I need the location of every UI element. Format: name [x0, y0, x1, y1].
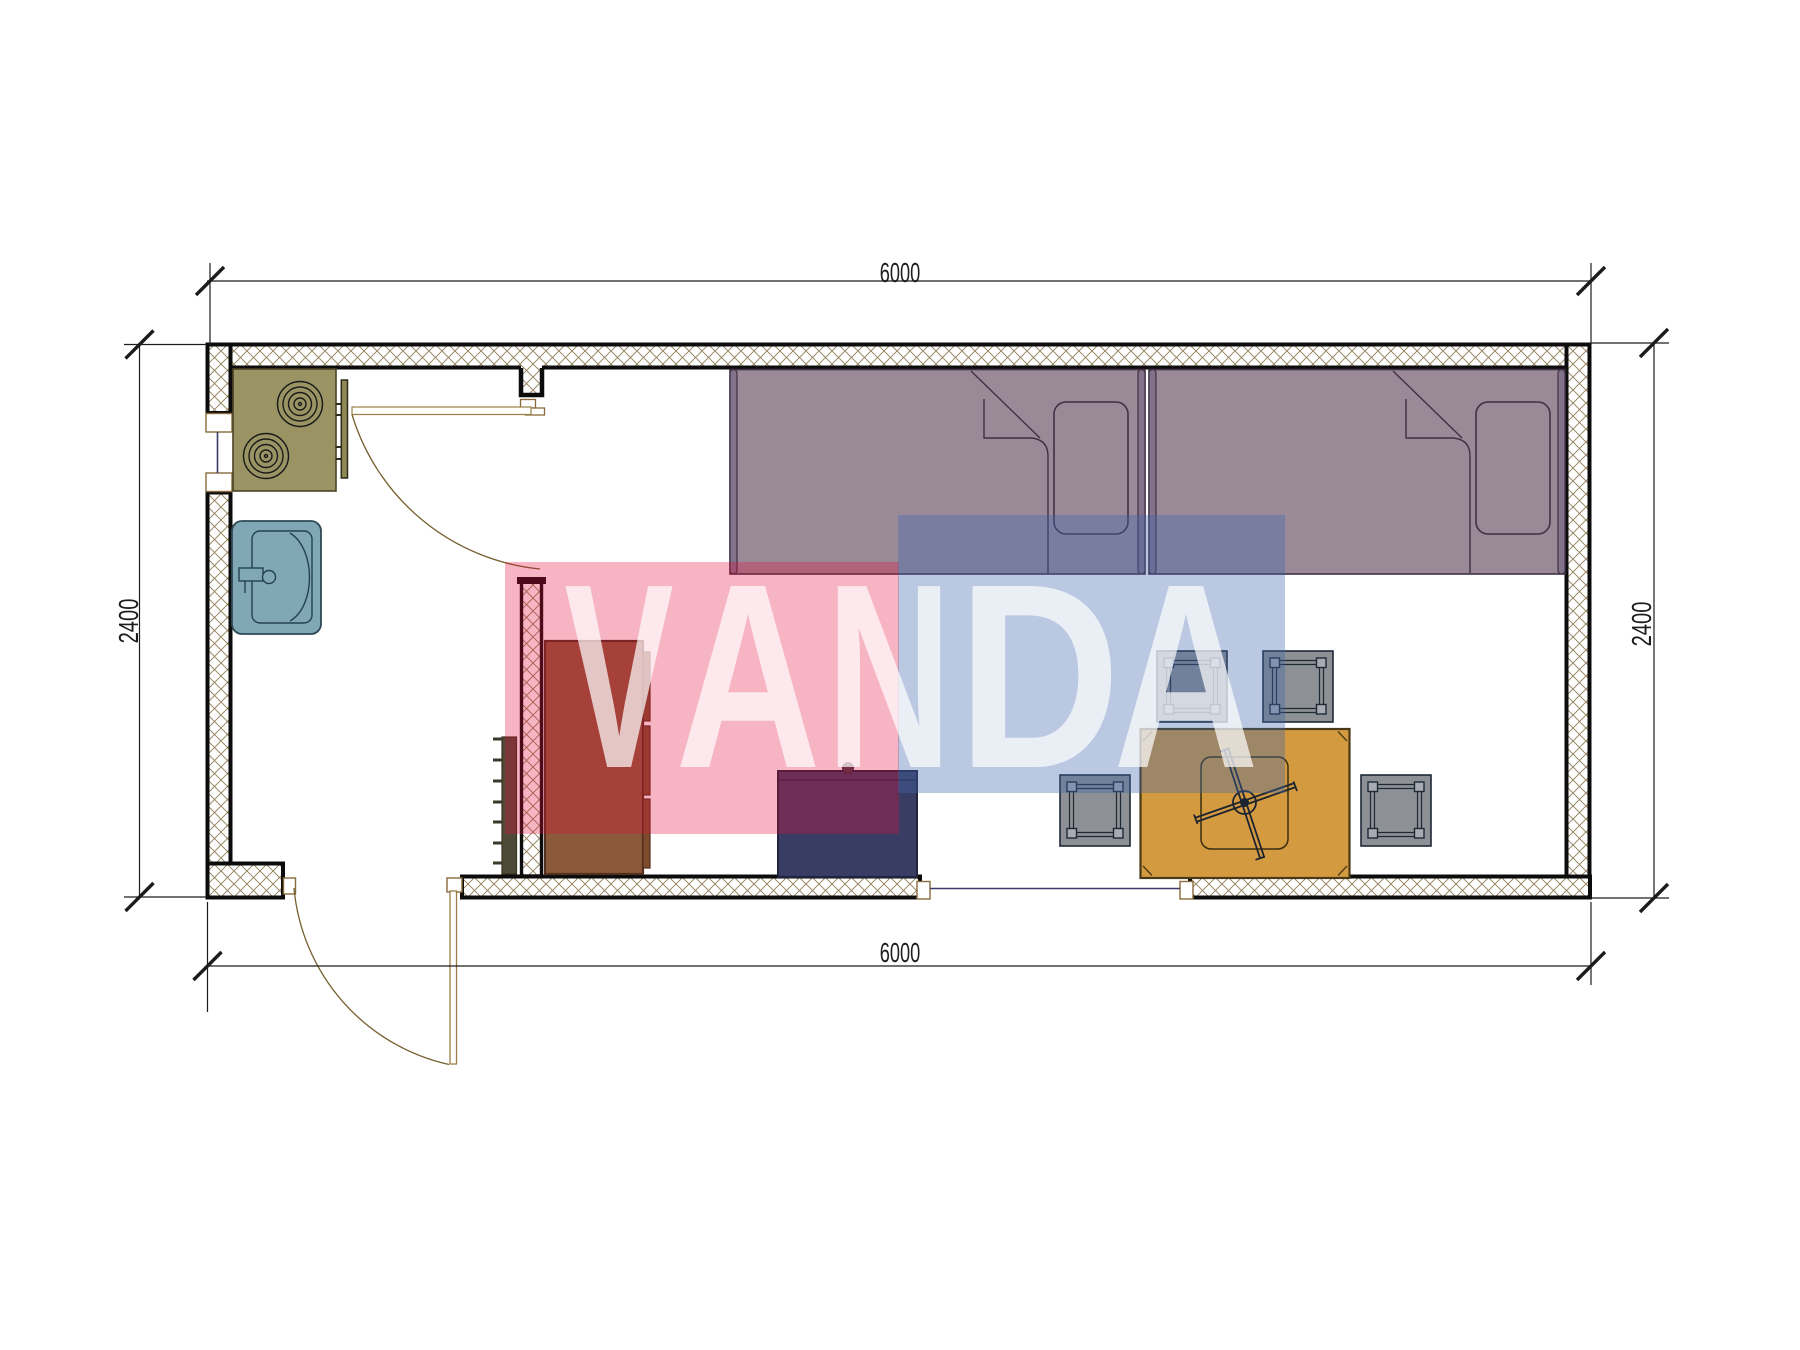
svg-text:V: V	[564, 531, 673, 824]
svg-text:N: N	[826, 530, 952, 824]
svg-text:6000: 6000	[880, 258, 920, 289]
svg-text:6000: 6000	[880, 938, 920, 969]
svg-text:A: A	[1113, 529, 1259, 823]
svg-text:D: D	[957, 529, 1120, 823]
svg-text:A: A	[675, 529, 821, 823]
svg-text:2400: 2400	[114, 599, 145, 644]
svg-text:2400: 2400	[1627, 602, 1658, 647]
